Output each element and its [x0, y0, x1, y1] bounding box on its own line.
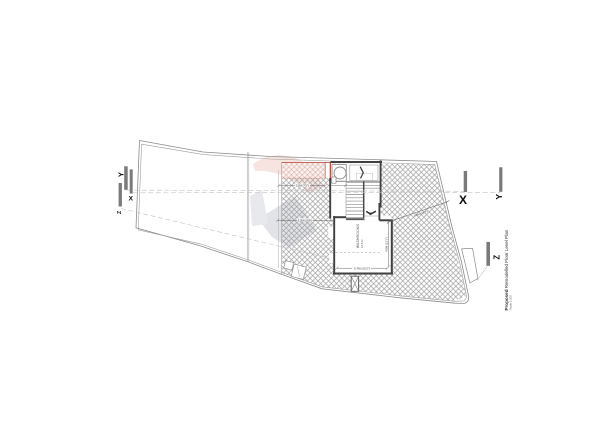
- svg-text:2.2M (7'2"): 2.2M (7'2"): [296, 184, 309, 188]
- svg-text:3.2M (10'6"): 3.2M (10'6"): [298, 218, 313, 222]
- svg-text:Scale 1:100: Scale 1:100: [508, 295, 512, 310]
- svg-text:Y: Y: [116, 172, 125, 177]
- svg-text:Y: Y: [494, 194, 504, 200]
- svg-text:X: X: [129, 195, 134, 202]
- svg-text:X: X: [459, 193, 467, 207]
- svg-text:Z: Z: [493, 255, 502, 260]
- svg-text:4.6M (15'1"): 4.6M (15'1"): [384, 237, 388, 252]
- svg-text:3.7M (12'2"): 3.7M (12'2"): [354, 267, 370, 271]
- svg-text:12.5m²: 12.5m²: [360, 239, 364, 248]
